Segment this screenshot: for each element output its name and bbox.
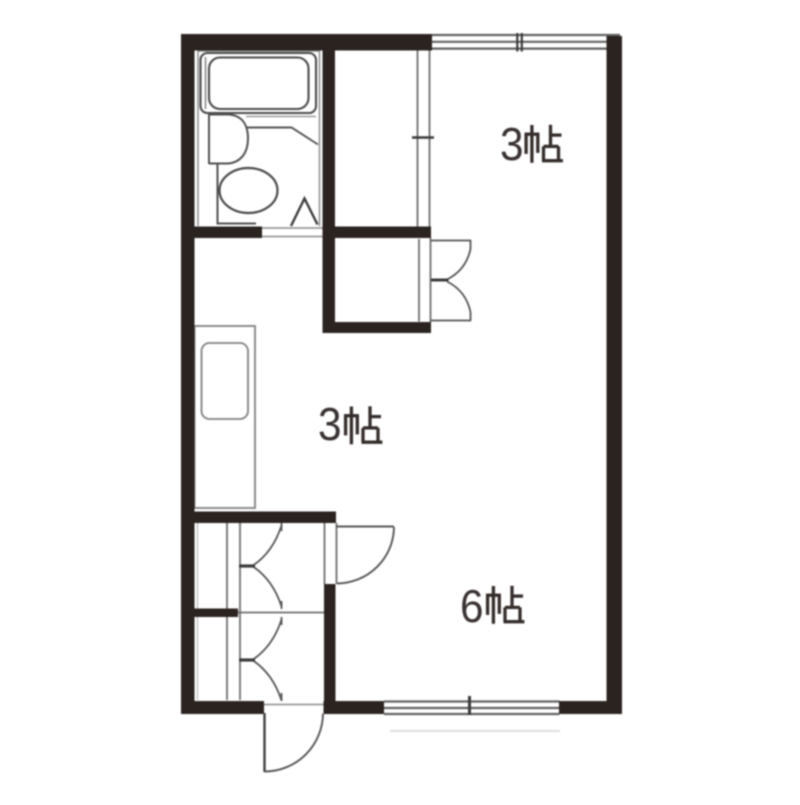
svg-text:6: 6	[460, 581, 484, 632]
svg-text:3: 3	[500, 119, 524, 170]
svg-text:3: 3	[318, 399, 342, 450]
